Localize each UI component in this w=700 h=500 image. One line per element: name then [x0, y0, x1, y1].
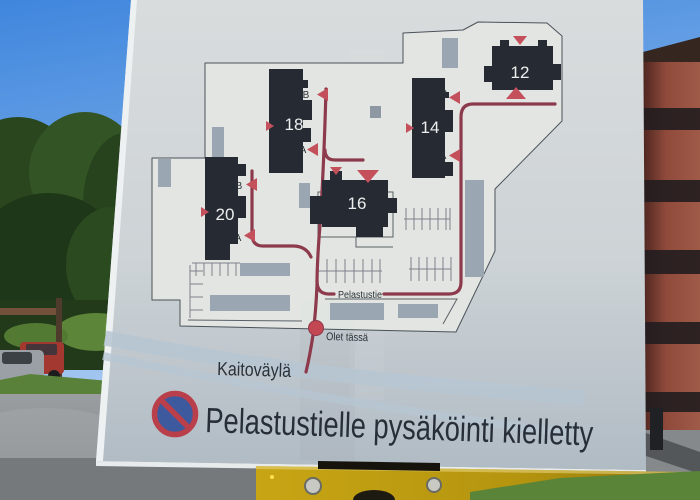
entrance-18A-label: A	[300, 145, 307, 156]
entrance-14B-label: B	[441, 89, 448, 100]
building-16-label: 16	[348, 194, 367, 213]
bollard	[650, 408, 663, 450]
entrance-18B-label: B	[303, 90, 310, 101]
apartment-building-right	[643, 37, 700, 434]
scene: 20 18 16 14 12 B A B A B A Pelastustie O…	[0, 0, 700, 500]
kaitovayla-label: Kaitoväylä	[217, 359, 292, 382]
building-12-label: 12	[511, 63, 530, 82]
fence-rail	[0, 308, 62, 315]
building-14-label: 14	[421, 118, 440, 137]
entrance-20B-label: B	[236, 181, 243, 192]
you-are-here-label: Olet tässä	[326, 331, 369, 344]
bolt-right	[427, 478, 441, 492]
entrance-20A-label: A	[235, 233, 242, 244]
bolt-left	[305, 478, 321, 494]
pelastustie-label: Pelastustie	[338, 290, 382, 301]
entrance-14A-label: A	[440, 151, 447, 162]
mount-dot-left	[270, 475, 274, 479]
no-parking-icon	[155, 394, 196, 435]
building-20-label: 20	[216, 205, 235, 224]
photo-of-map-sign: 20 18 16 14 12 B A B A B A Pelastustie O…	[0, 0, 700, 500]
building-18-label: 18	[285, 115, 304, 134]
you-are-here-dot	[309, 321, 324, 336]
